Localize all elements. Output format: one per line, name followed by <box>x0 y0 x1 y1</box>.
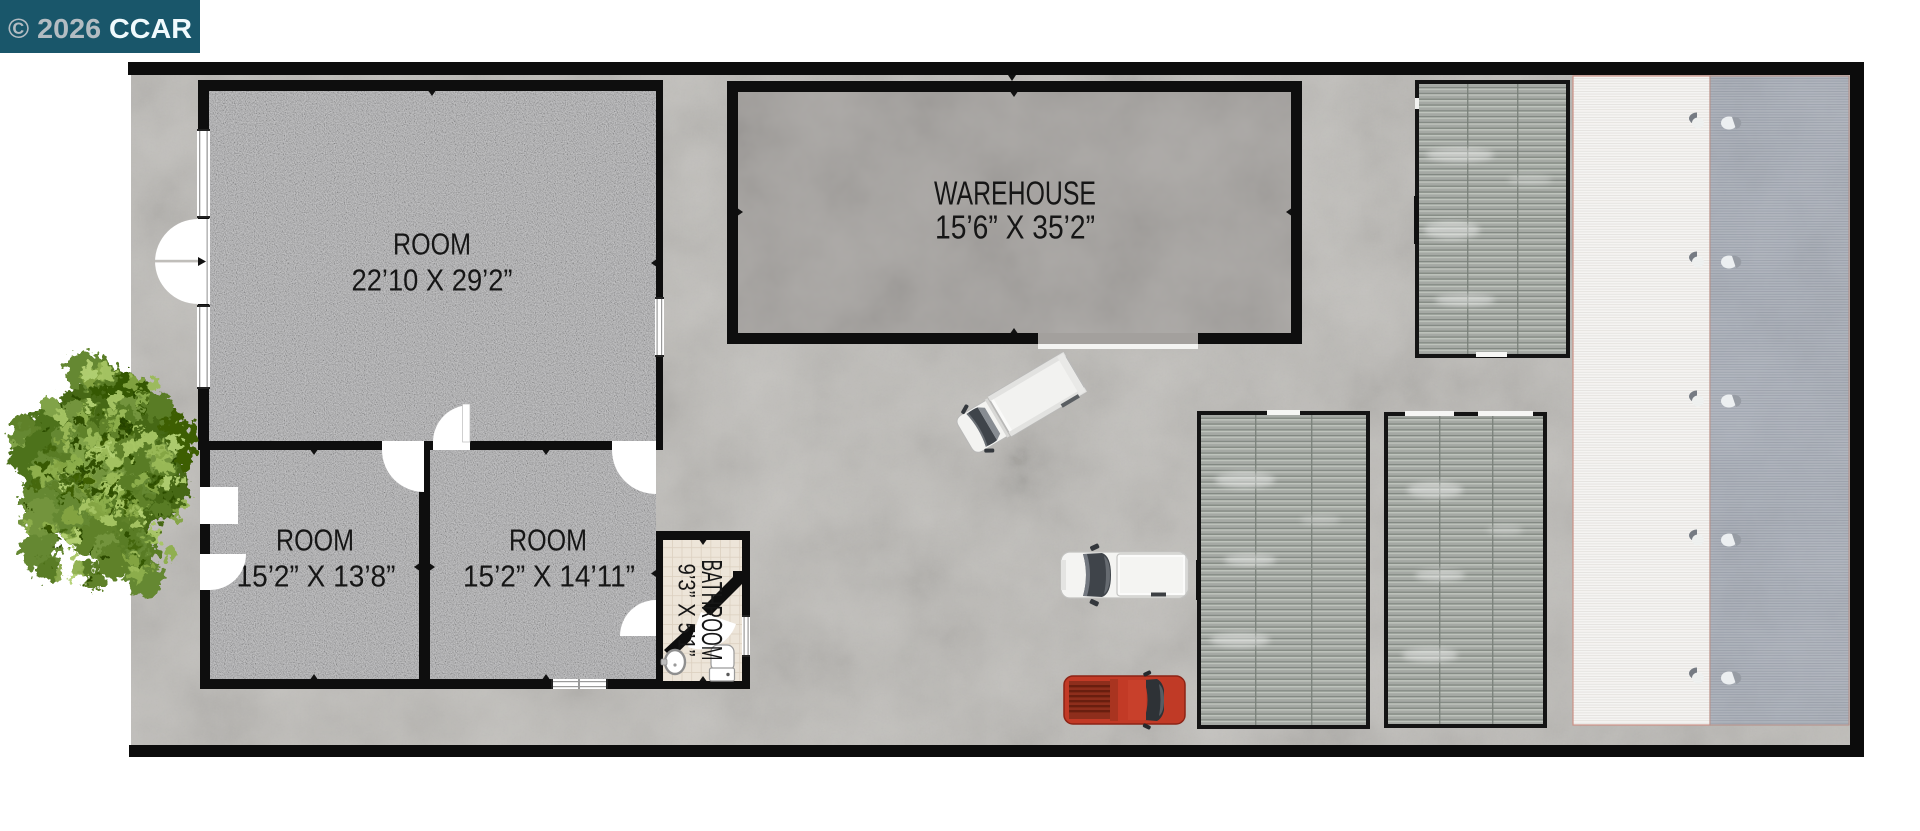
svg-text:15’2” X 14’11”: 15’2” X 14’11” <box>463 559 635 594</box>
svg-text:© 2026 CCAR: © 2026 CCAR <box>8 13 192 44</box>
svg-text:22’10 X 29’2”: 22’10 X 29’2” <box>352 263 513 298</box>
svg-text:15’2” X 13’8”: 15’2” X 13’8” <box>237 559 396 594</box>
svg-text:15’6” X 35’2”: 15’6” X 35’2” <box>935 209 1095 246</box>
svg-text:WAREHOUSE: WAREHOUSE <box>934 175 1096 212</box>
svg-text:ROOM: ROOM <box>509 523 587 558</box>
svg-text:ROOM: ROOM <box>393 227 471 262</box>
svg-text:ROOM: ROOM <box>276 523 354 558</box>
svg-text:9’3” X 5’1”: 9’3” X 5’1” <box>673 564 700 657</box>
